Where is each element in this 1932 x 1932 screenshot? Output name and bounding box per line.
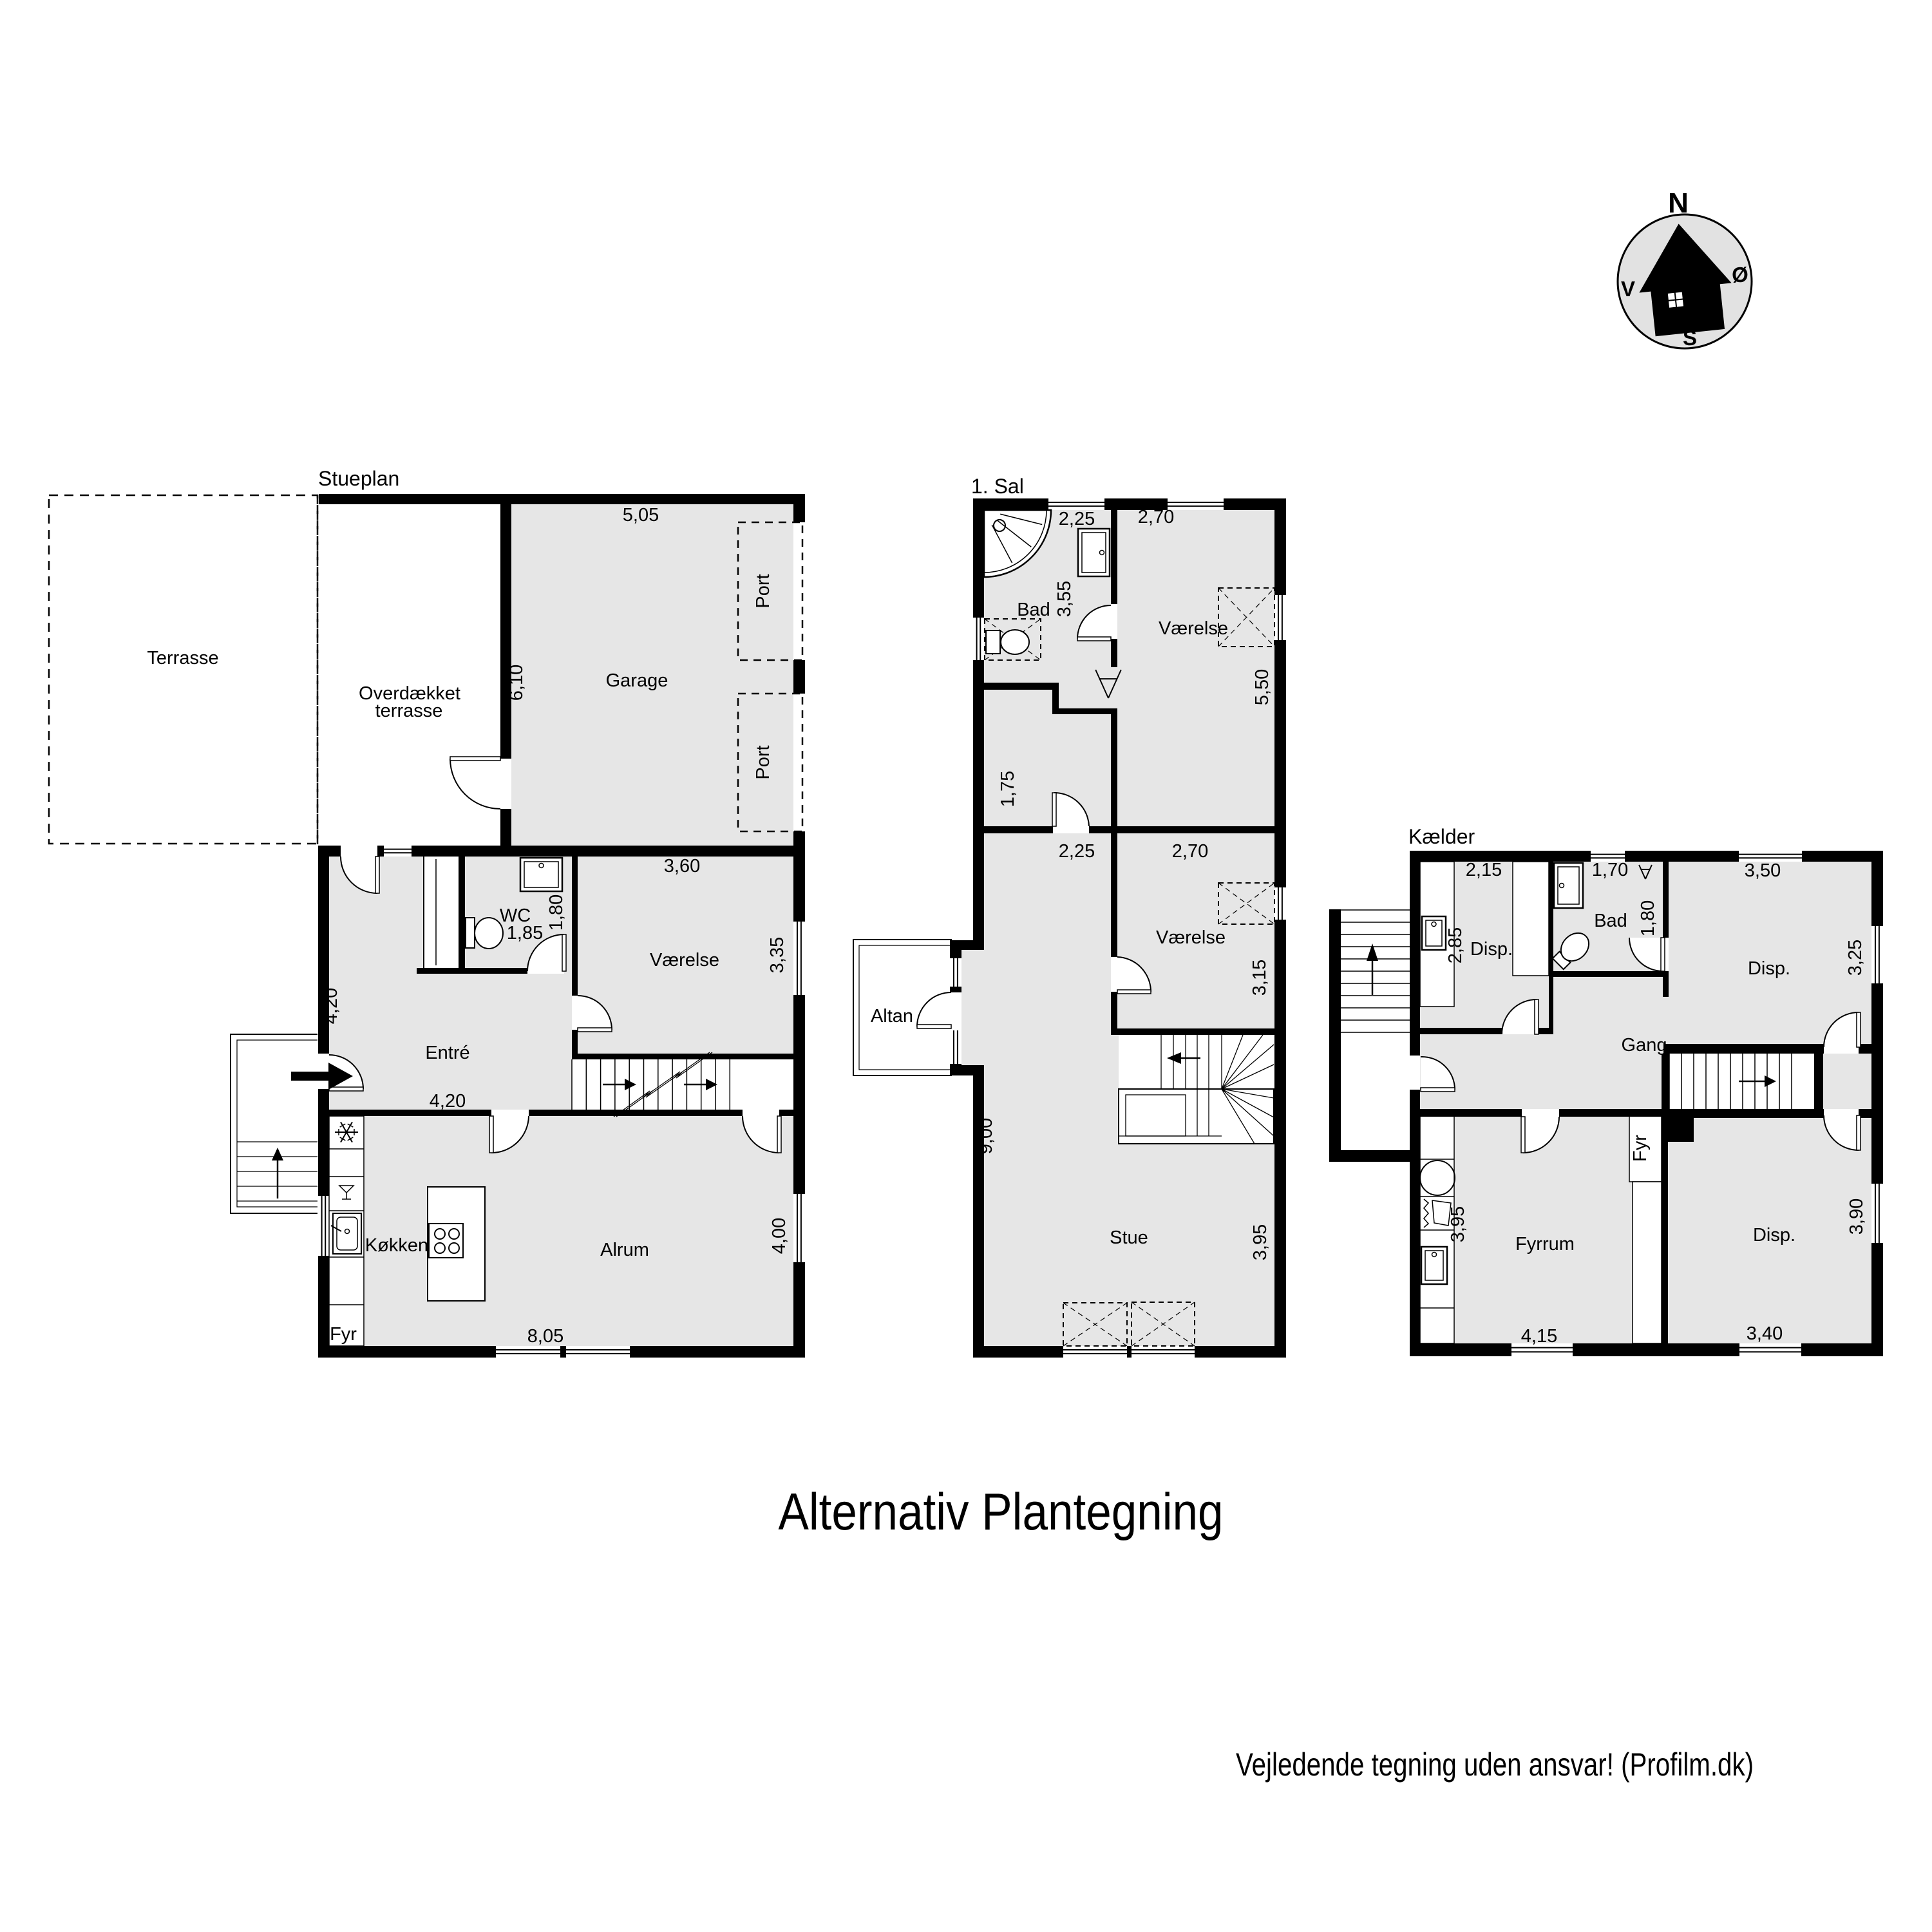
svg-text:Port: Port <box>753 574 773 608</box>
svg-text:Entré: Entré <box>425 1043 469 1063</box>
svg-text:Kælder: Kælder <box>1408 825 1475 848</box>
svg-text:1,80: 1,80 <box>1638 900 1658 936</box>
svg-text:3,55: 3,55 <box>1054 581 1075 617</box>
svg-text:Disp.: Disp. <box>1748 958 1790 979</box>
svg-text:Bad: Bad <box>1017 600 1050 620</box>
svg-text:Disp.: Disp. <box>1470 939 1513 960</box>
svg-text:Altan: Altan <box>871 1006 913 1027</box>
svg-text:2,15: 2,15 <box>1466 860 1502 880</box>
svg-text:Garage: Garage <box>606 670 668 691</box>
svg-text:8,05: 8,05 <box>527 1326 563 1347</box>
svg-text:6,10: 6,10 <box>506 665 527 701</box>
svg-text:Fyr: Fyr <box>1630 1135 1651 1162</box>
svg-text:Værelse: Værelse <box>650 950 719 971</box>
svg-text:S: S <box>1683 326 1697 350</box>
svg-text:3,95: 3,95 <box>1250 1224 1271 1260</box>
svg-text:3,15: 3,15 <box>1249 960 1270 996</box>
svg-text:Stueplan: Stueplan <box>318 467 399 490</box>
svg-text:4,20: 4,20 <box>430 1091 466 1112</box>
svg-text:2,25: 2,25 <box>1059 509 1095 529</box>
svg-text:9,00: 9,00 <box>976 1118 996 1154</box>
svg-text:4,20: 4,20 <box>321 988 341 1024</box>
svg-text:3,25: 3,25 <box>1845 940 1866 976</box>
svg-text:2,70: 2,70 <box>1172 841 1208 862</box>
svg-text:3,40: 3,40 <box>1747 1323 1783 1344</box>
svg-text:Bad: Bad <box>1594 911 1627 931</box>
svg-text:3,60: 3,60 <box>664 856 700 876</box>
svg-text:Værelse: Værelse <box>1159 618 1228 639</box>
svg-text:3,90: 3,90 <box>1846 1198 1867 1235</box>
svg-text:V: V <box>1621 277 1635 301</box>
svg-text:2,25: 2,25 <box>1059 841 1095 862</box>
svg-text:1,85: 1,85 <box>507 923 543 943</box>
svg-text:2,85: 2,85 <box>1445 927 1466 963</box>
svg-text:Fyrrum: Fyrrum <box>1515 1234 1575 1255</box>
svg-text:Disp.: Disp. <box>1753 1225 1795 1245</box>
svg-text:Vejledende tegning uden ansvar: Vejledende tegning uden ansvar! (Profilm… <box>1236 1747 1754 1783</box>
svg-text:3,95: 3,95 <box>1448 1206 1468 1242</box>
svg-text:Alrum: Alrum <box>600 1240 649 1260</box>
svg-text:1. Sal: 1. Sal <box>971 475 1024 498</box>
svg-text:N: N <box>1668 187 1689 219</box>
svg-text:5,05: 5,05 <box>623 505 659 526</box>
svg-text:terrasse: terrasse <box>375 701 443 721</box>
svg-text:Port: Port <box>753 745 773 779</box>
svg-text:Terrasse: Terrasse <box>147 648 218 668</box>
svg-text:1,80: 1,80 <box>546 895 567 931</box>
svg-text:2,70: 2,70 <box>1138 507 1174 527</box>
svg-text:Gang: Gang <box>1622 1035 1667 1056</box>
svg-text:Fyr: Fyr <box>330 1324 357 1345</box>
svg-text:Ø: Ø <box>1732 263 1748 287</box>
svg-text:4,15: 4,15 <box>1521 1326 1557 1347</box>
svg-text:Værelse: Værelse <box>1156 927 1226 948</box>
svg-text:1,75: 1,75 <box>998 771 1018 807</box>
svg-text:3,35: 3,35 <box>767 937 788 973</box>
svg-text:1,70: 1,70 <box>1592 860 1628 880</box>
svg-text:5,50: 5,50 <box>1252 669 1273 705</box>
svg-text:3,50: 3,50 <box>1745 860 1781 881</box>
svg-text:Køkken: Køkken <box>365 1235 428 1256</box>
svg-text:4,00: 4,00 <box>769 1218 790 1254</box>
svg-text:Alternativ Plantegning: Alternativ Plantegning <box>779 1483 1224 1541</box>
svg-text:Stue: Stue <box>1110 1227 1148 1248</box>
